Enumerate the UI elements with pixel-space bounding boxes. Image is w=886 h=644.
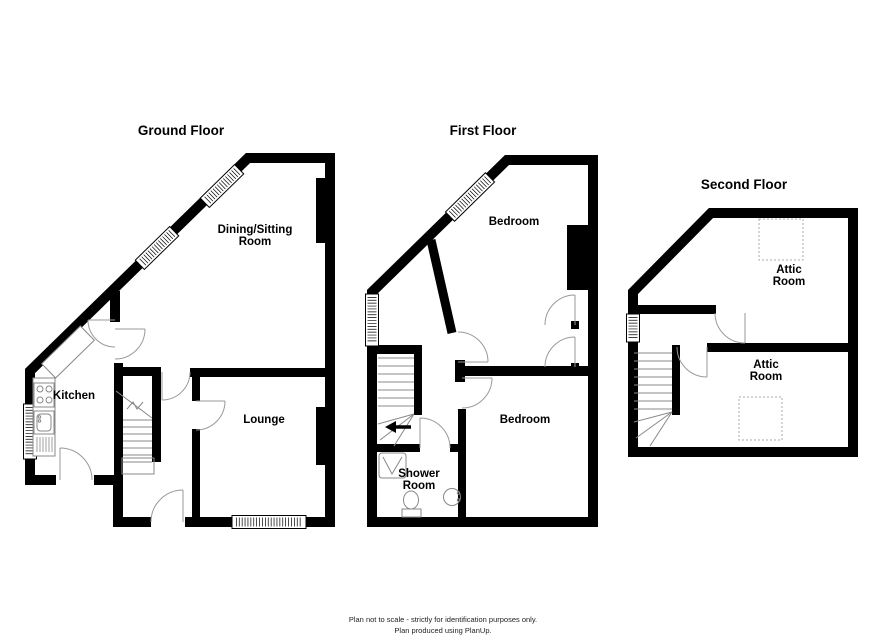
chimney-breast [567,225,593,290]
stair-wall-right [672,345,680,415]
bedroom2-left-wall [458,409,466,522]
dining-lounge-divider-wall [190,368,330,377]
room-label-attic-room-upper: Attic Room [767,264,811,288]
ground-floor-plan [24,158,336,529]
stair-wall-right [414,345,422,415]
second-floor-title: Second Floor [684,177,804,192]
room-label-dining-sitting: Dining/Sitting Room [205,224,305,248]
shower-room-wall [377,444,420,452]
room-label-lounge: Lounge [224,414,304,426]
floorplan-drawing [0,0,886,644]
disclaimer: Plan not to scale - strictly for identif… [143,614,743,636]
first-floor-title: First Floor [423,123,543,138]
attic-divider-wall-lower [707,343,858,352]
room-label-kitchen: Kitchen [44,390,104,402]
second-floor-plan [627,213,859,452]
room-label-attic-room-lower: Attic Room [744,359,788,383]
door-gap [151,515,185,529]
disclaimer-line-2: Plan produced using PlanUp. [143,625,743,636]
disclaimer-line-1: Plan not to scale - strictly for identif… [143,614,743,625]
room-label-shower-room: Shower Room [390,468,448,492]
floorplan-page: Ground Floor First Floor Second Floor Di… [0,0,886,644]
window [366,294,379,346]
wall-stub-kitchen [110,291,120,322]
ground-floor-title: Ground Floor [121,123,241,138]
wall-nub [455,360,465,382]
room-label-bedroom-front: Bedroom [479,216,549,228]
window [627,314,640,342]
chimney-breast [316,407,335,465]
room-label-bedroom-rear: Bedroom [490,414,560,426]
window [232,516,306,529]
shower-room-wall [450,444,462,452]
door-gap [56,473,94,487]
lounge-left-wall-upper [192,377,200,401]
lounge-left-wall-lower [192,429,200,522]
attic-divider-wall-upper [633,305,716,314]
chimney-breast [316,178,335,243]
stair-wall-right [152,367,161,462]
